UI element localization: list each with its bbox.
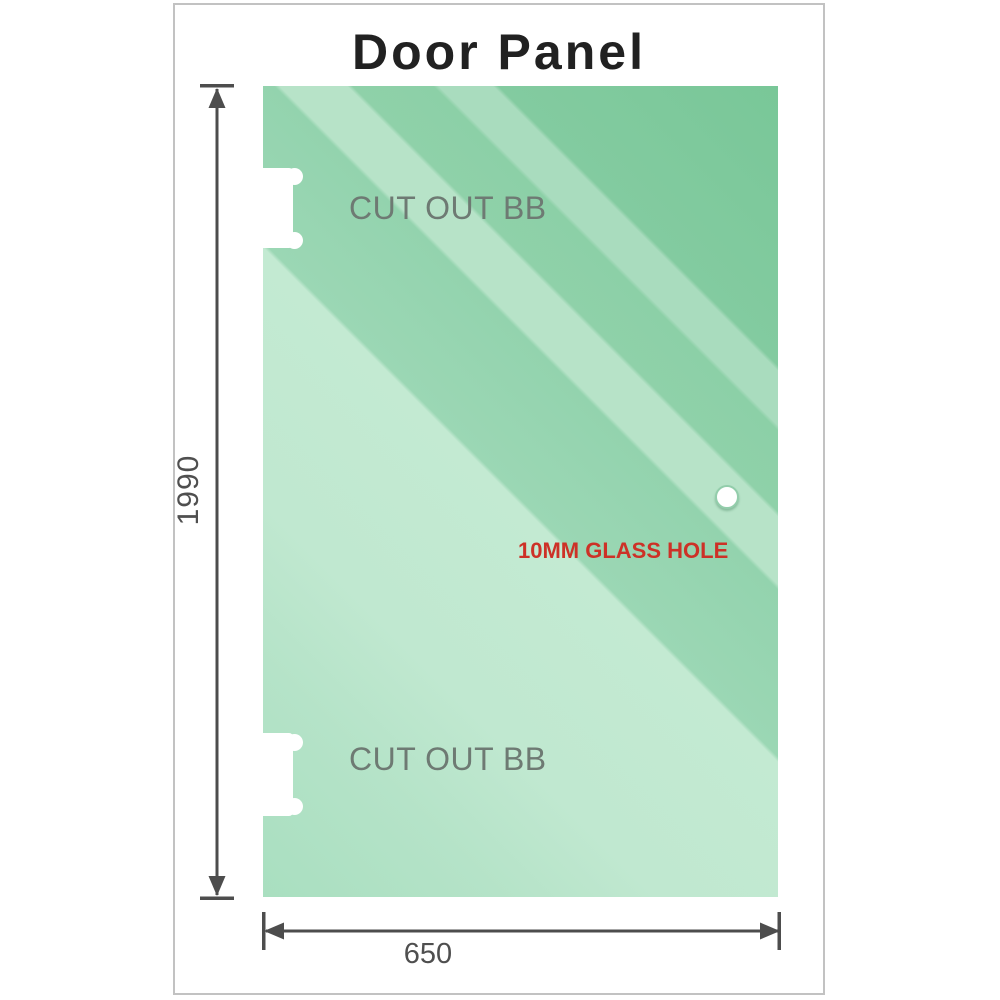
diagram-title: Door Panel — [173, 23, 825, 81]
height-dim-top-cap — [200, 84, 234, 88]
diagram-frame: Door Panel CUT OUT BB CUT OUT BB 10MM GL… — [173, 3, 825, 995]
cutout-top-label: CUT OUT BB — [349, 190, 547, 226]
height-dim-arrowhead-down — [209, 876, 226, 896]
glass-hole — [715, 485, 739, 509]
height-dim-bottom-cap — [200, 897, 234, 901]
cutout-bottom-lobe-upper — [286, 734, 303, 751]
height-dimension-label: 1990 — [173, 430, 205, 550]
cutout-bottom-lobe-lower — [286, 798, 303, 815]
width-dim-arrowhead-right — [760, 923, 780, 940]
width-dim-arrowhead-left — [264, 923, 284, 940]
width-dimension-label: 650 — [388, 938, 468, 970]
glass-hole-label: 10MM GLASS HOLE — [518, 536, 728, 566]
cutout-bottom-label: CUT OUT BB — [349, 741, 547, 777]
cutout-top-lobe-upper — [286, 168, 303, 185]
height-dim-arrowhead-up — [209, 88, 226, 108]
width-dimension-arrow — [258, 906, 788, 952]
cutout-top-lobe-lower — [286, 232, 303, 249]
